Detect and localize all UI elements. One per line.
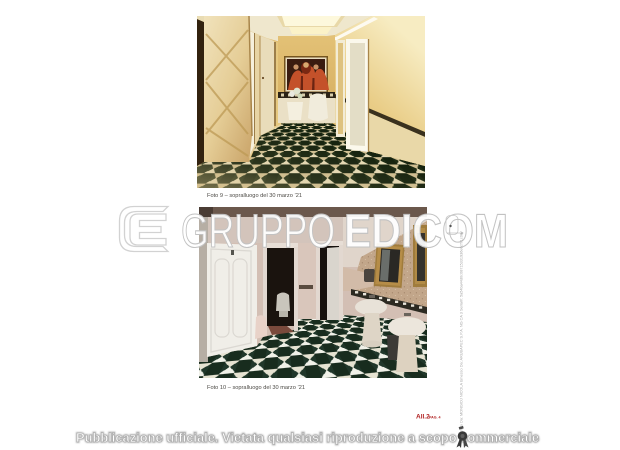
svg-text:All.2: All.2 [416, 414, 430, 421]
svg-text:PAG. 4: PAG. 4 [429, 416, 441, 420]
svg-text:GRUPPO: GRUPPO [181, 204, 335, 257]
svg-text:Foto 10 – sopralluogo del 30 m: Foto 10 – sopralluogo del 30 marzo ’21 [207, 385, 305, 391]
svg-text:Pubblicazione ufficiale. Vieta: Pubblicazione ufficiale. Vietata qualsia… [76, 430, 539, 445]
svg-text:Foto 9 – sopralluogo del 30 ma: Foto 9 – sopralluogo del 30 marzo ’21 [207, 193, 302, 199]
svg-text:EDICOM: EDICOM [344, 204, 508, 257]
svg-text:Firmato Da: MONGIOJ NICOLA Eme: Firmato Da: MONGIOJ NICOLA Emesso Da: AR… [460, 233, 464, 437]
